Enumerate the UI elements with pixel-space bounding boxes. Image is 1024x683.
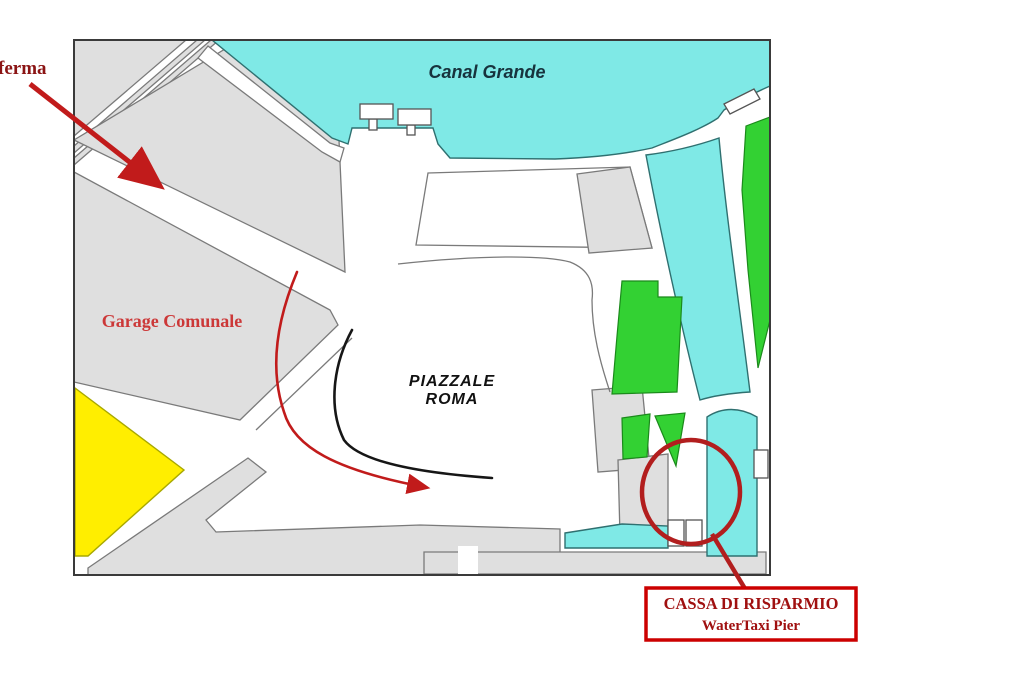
callout-title: CASSA DI RISPARMIO — [664, 594, 839, 613]
venice-piazzale-roma-map-page: Canal Grande Garage Comunale PIAZZALE RO… — [0, 0, 1024, 683]
map-canvas: Canal Grande Garage Comunale PIAZZALE RO… — [0, 0, 1024, 683]
piazzale-roma-label-line2: ROMA — [426, 391, 479, 408]
garage-comunale-label: Garage Comunale — [102, 311, 242, 331]
green-building-large — [612, 281, 682, 394]
dock-gap — [458, 546, 478, 576]
canal-grande-label: Canal Grande — [428, 62, 545, 82]
piazzale-roma-label-line1: PIAZZALE — [409, 373, 496, 390]
callout-box: CASSA DI RISPARMIO WaterTaxi Pier — [646, 588, 856, 640]
green-building-small-1 — [622, 414, 650, 459]
terraferma-label: ferma — [0, 58, 47, 79]
callout-subtitle: WaterTaxi Pier — [702, 618, 801, 634]
